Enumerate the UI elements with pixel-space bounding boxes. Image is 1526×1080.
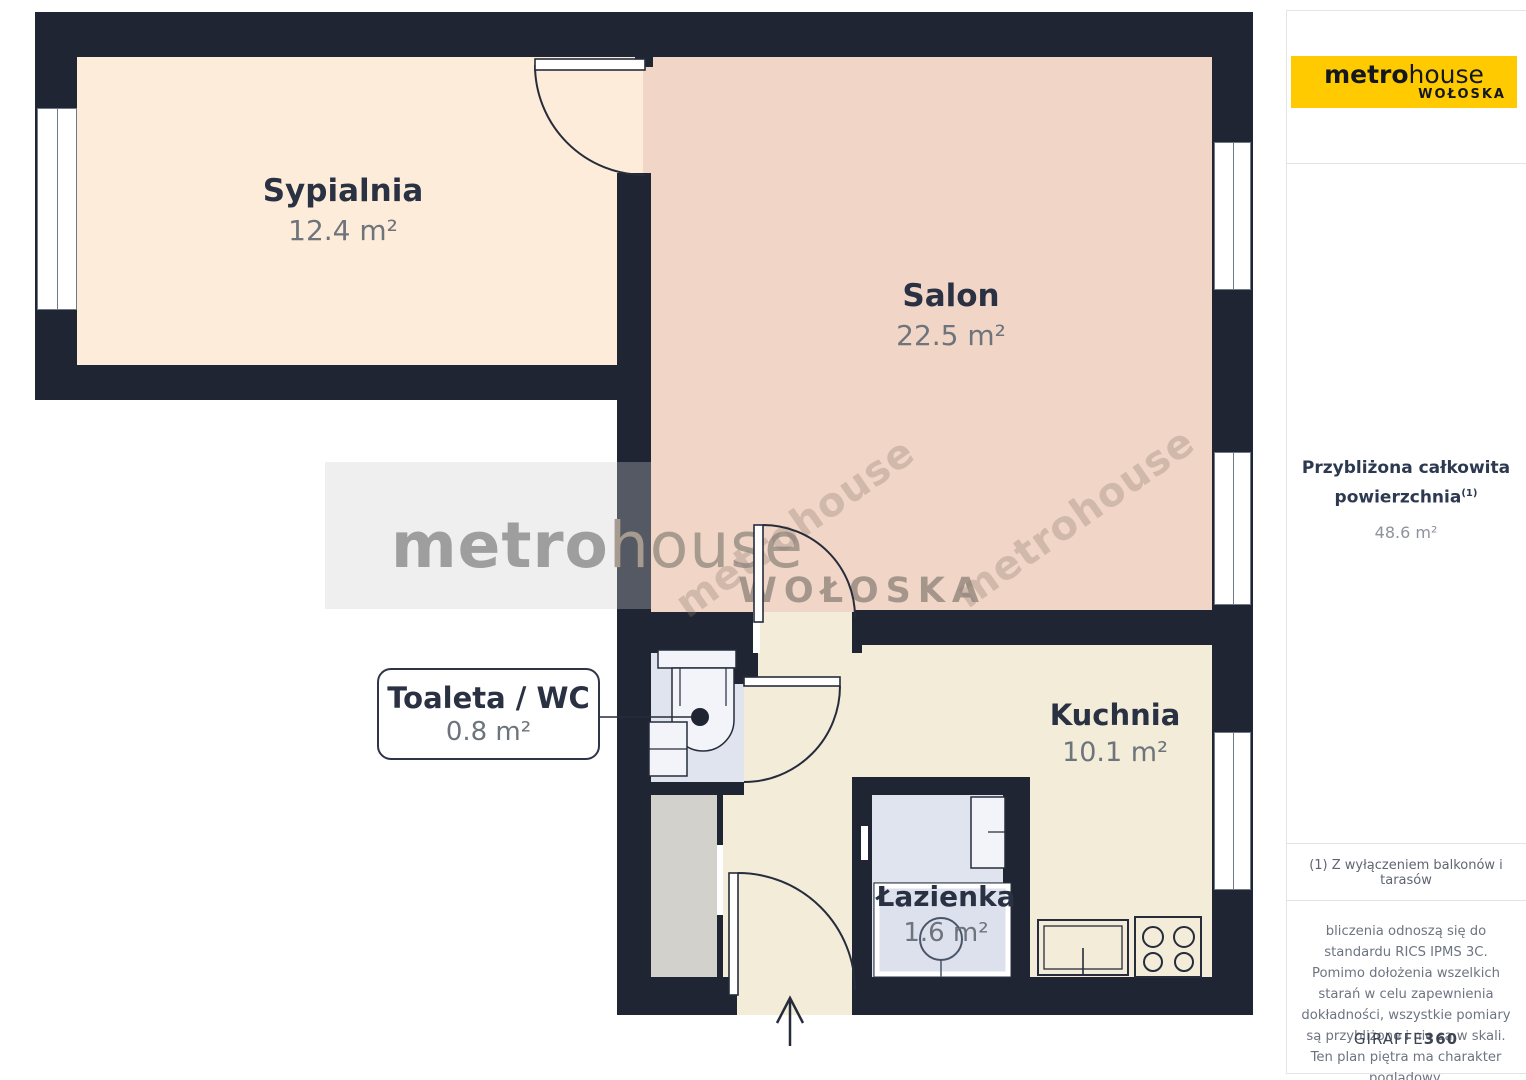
room-area: 1.6 m² [806, 918, 1086, 948]
floor-plan-page: metrohouse WOŁOSKA metrohouse metrohouse [0, 0, 1526, 1080]
sidebar-divider-footnote-top [1286, 843, 1526, 844]
logo-house: house [1409, 60, 1484, 89]
room-name: Salon [811, 278, 1091, 314]
total-area-title-line2: powierzchnia [1335, 488, 1462, 508]
total-area-title-line1: Przybliżona całkowita [1302, 458, 1510, 478]
logo-wordmark: metrohouse [1291, 62, 1517, 88]
room-name: Sypialnia [203, 173, 483, 209]
room-area: 22.5 m² [811, 319, 1091, 352]
room-area: 12.4 m² [203, 214, 483, 247]
toilet-door [744, 677, 840, 782]
room-label-toilet-callout: Toaleta / WC 0.8 m² [377, 668, 600, 760]
room-name: Kuchnia [975, 698, 1255, 732]
entrance-arrow-icon [777, 998, 803, 1046]
room-label-bathroom: Łazienka 1.6 m² [806, 880, 1086, 948]
logo-woloska: WOŁOSKA [1291, 88, 1517, 102]
giraffe360-brand: GIRAFFE360 [1296, 1030, 1516, 1048]
room-name: Toaleta / WC [379, 681, 598, 715]
total-area-title: Przybliżona całkowita powierzchnia(1) [1296, 456, 1516, 511]
giraffe-label: GIRAFFE [1354, 1030, 1424, 1048]
bathroom-sink [971, 797, 1005, 868]
room-label-kitchen: Kuchnia 10.1 m² [975, 698, 1255, 768]
total-area-block: Przybliżona całkowita powierzchnia(1) 48… [1296, 456, 1516, 542]
room-label-salon: Salon 22.5 m² [811, 278, 1091, 352]
salon-door [754, 525, 855, 622]
toilet-sink [649, 722, 687, 776]
sidebar-divider-top [1286, 10, 1526, 11]
footnote-text: (1) Z wyłączeniem balkonów i tarasów [1292, 858, 1520, 888]
room-label-bedroom: Sypialnia 12.4 m² [203, 173, 483, 247]
giraffe-360: 360 [1424, 1030, 1458, 1048]
metrohouse-logo: metrohouse WOŁOSKA [1291, 56, 1517, 108]
stove [1135, 917, 1201, 977]
sidebar-divider-logo [1286, 163, 1526, 164]
bedroom-door [535, 59, 645, 175]
logo-metro: metro [1324, 60, 1408, 89]
sidebar-left-border [1286, 10, 1287, 1073]
sidebar-divider-footnote-bottom [1286, 900, 1526, 901]
room-name: Łazienka [806, 880, 1086, 913]
room-area: 0.8 m² [379, 717, 598, 747]
disclaimer-text: bliczenia odnoszą się do standardu RICS … [1300, 921, 1512, 1080]
total-area-footnote-marker: (1) [1461, 488, 1477, 499]
room-area: 10.1 m² [975, 737, 1255, 768]
total-area-value: 48.6 m² [1296, 523, 1516, 542]
